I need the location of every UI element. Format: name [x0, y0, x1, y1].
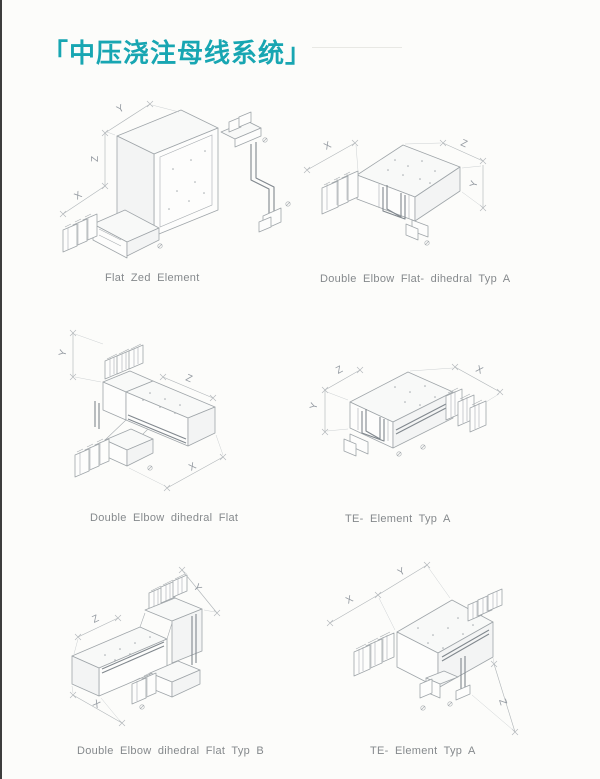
isometric-body: [354, 589, 502, 710]
figure-caption: TE- Element Typ A: [345, 513, 451, 525]
isometric-body: [63, 110, 290, 258]
dim-label-x: X: [344, 594, 355, 607]
isometric-body: [344, 372, 486, 456]
double-elbow-dihedral-flat-drawing: Y Z X: [55, 325, 315, 510]
dim-label-y: Y: [115, 103, 127, 116]
figure-caption: Flat Zed Element: [105, 272, 200, 284]
figure-te-element-a1: Z X Y: [300, 342, 515, 497]
figure-double-elbow-dihedral-flat: Y Z X: [55, 325, 315, 510]
double-elbow-dihedral-flat-b-drawing: Z Y X: [50, 555, 315, 745]
flat-zed-element-drawing: Y Z X: [55, 96, 310, 271]
figure-te-element-a2: X Y Z: [318, 558, 533, 740]
dim-label-y: Y: [468, 179, 480, 189]
figure-flat-zed-element: Y Z X: [55, 96, 310, 271]
figure-caption: TE- Element Typ A: [370, 745, 476, 757]
figure-double-elbow-dihedral-flat-b: Z Y X: [50, 555, 315, 745]
dim-label-y: Y: [396, 566, 408, 579]
isometric-body: [72, 574, 202, 709]
dim-label-z: Z: [90, 156, 101, 162]
dim-label-y: Y: [57, 348, 69, 358]
title-rule: [312, 47, 402, 48]
dim-label-x: X: [474, 364, 485, 377]
te-element-a2-drawing: X Y Z: [318, 558, 533, 740]
figure-caption: Double Elbow dihedral Flat: [90, 512, 238, 524]
te-element-a1-drawing: Z X Y: [300, 342, 515, 497]
page-title: 「中压浇注母线系统」: [42, 33, 312, 70]
isometric-body: [322, 145, 460, 245]
double-elbow-flat-dihedral-a-drawing: X Z Y: [300, 118, 505, 268]
dim-label-y: Y: [308, 401, 320, 411]
isometric-body: [75, 344, 215, 477]
figure-double-elbow-flat-dihedral-a: X Z Y: [300, 118, 505, 268]
dim-label-x: X: [322, 140, 333, 153]
dim-label-z: Z: [91, 613, 101, 626]
dim-label-z: Z: [184, 373, 194, 386]
catalog-page: { "page": { "title": "「中压浇注母线系统」", "acce…: [0, 0, 600, 779]
page-left-edge: [0, 0, 2, 779]
figure-caption: Double Elbow Flat- dihedral Typ A: [320, 273, 510, 285]
dim-label-z: Z: [459, 138, 469, 151]
figure-caption: Double Elbow dihedral Flat Typ B: [77, 745, 264, 757]
dim-label-y: Y: [191, 582, 204, 594]
dim-label-x: X: [91, 698, 103, 711]
dim-label-z: Z: [334, 364, 345, 377]
